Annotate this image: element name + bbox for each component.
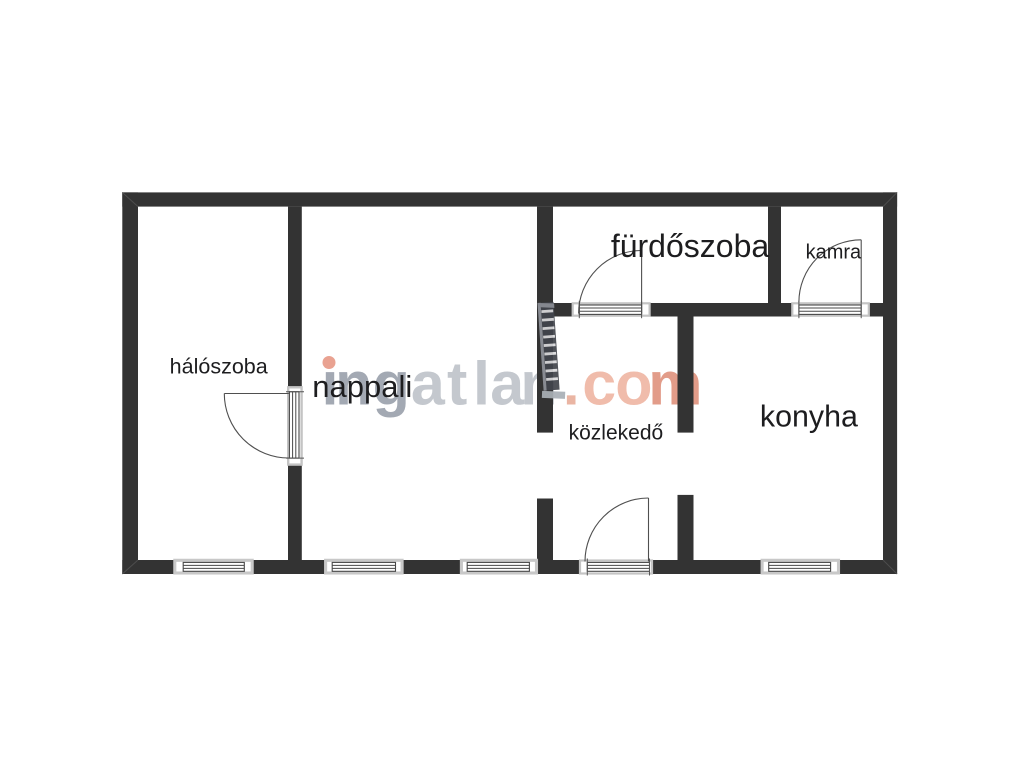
svg-text:o: o	[615, 349, 652, 417]
svg-text:c: c	[582, 349, 616, 417]
svg-text:.: .	[563, 349, 580, 417]
svg-text:kamra: kamra	[806, 242, 862, 264]
svg-text:konyha: konyha	[760, 400, 858, 434]
svg-text:t: t	[447, 349, 467, 417]
svg-text:a: a	[411, 349, 446, 417]
svg-text:fürdőszoba: fürdőszoba	[611, 228, 770, 264]
svg-text:közlekedő: közlekedő	[569, 422, 664, 445]
svg-text:l: l	[473, 349, 490, 417]
svg-text:nappali: nappali	[312, 369, 412, 404]
svg-text:hálószoba: hálószoba	[170, 355, 268, 379]
svg-text:m: m	[648, 349, 702, 417]
